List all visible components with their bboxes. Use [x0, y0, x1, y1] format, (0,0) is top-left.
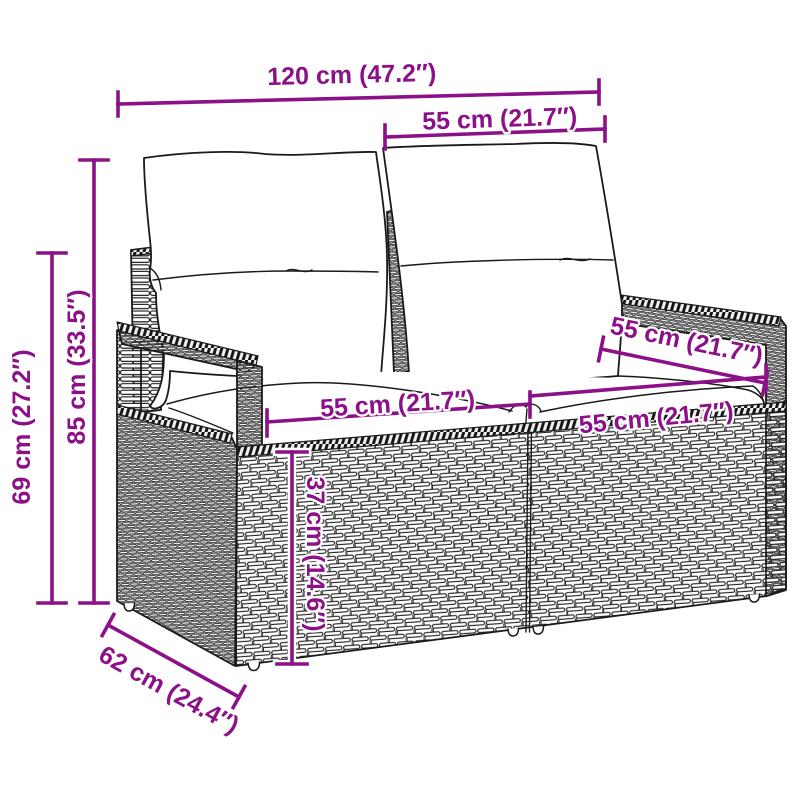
svg-text:85 cm (33.5″): 85 cm (33.5″): [63, 289, 91, 444]
svg-text:55 cm (21.7″): 55 cm (21.7″): [422, 102, 578, 135]
svg-text:37 cm (14.6″): 37 cm (14.6″): [301, 476, 329, 631]
svg-text:120 cm (47.2″): 120 cm (47.2″): [267, 59, 437, 91]
svg-text:69 cm (27.2″): 69 cm (27.2″): [8, 349, 36, 504]
